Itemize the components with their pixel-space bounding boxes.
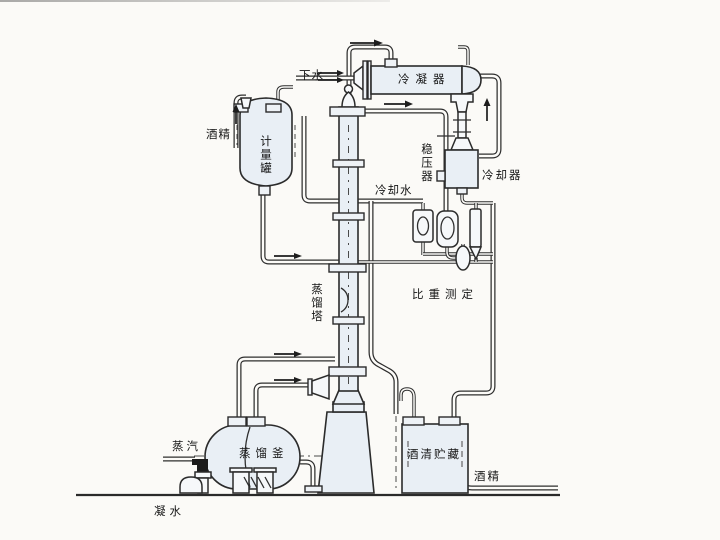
label-cooling-water: 冷却水 bbox=[375, 184, 413, 197]
label-pressure-stabilizer: 稳压器 bbox=[419, 143, 433, 184]
label-gravity-measurement: 比重测定 bbox=[412, 288, 478, 301]
sight-glass bbox=[413, 210, 433, 242]
feed-bell bbox=[241, 98, 251, 108]
label-condenser: 冷凝器 bbox=[398, 73, 451, 86]
flow-arrow-feed-icon bbox=[274, 253, 302, 259]
float-bulb bbox=[456, 246, 470, 270]
condenser-inlet-nozzle bbox=[385, 59, 397, 67]
condenser-left-trumpet bbox=[354, 66, 363, 90]
label-condensate: 凝水 bbox=[154, 505, 185, 518]
condenser-right-dome bbox=[462, 66, 481, 94]
label-metering-tank: 计量罐 bbox=[258, 135, 272, 176]
flow-arrow-coolant-up-icon bbox=[484, 98, 491, 121]
column-inlet-trumpet bbox=[312, 375, 329, 399]
steam-inlet-assembly bbox=[180, 459, 211, 493]
flow-arrow-still-vapor1-icon bbox=[274, 351, 302, 357]
steam-trap-bell bbox=[180, 477, 202, 493]
process-flow-diagram: 下水 冷凝器 酒精 计量罐 稳压器 冷却器 冷却水 比重测定 蒸馏塔 蒸汽 蒸馏… bbox=[0, 0, 720, 540]
label-alcohol-storage: 酒清贮藏 bbox=[407, 448, 461, 461]
label-cooler: 冷却器 bbox=[482, 169, 523, 182]
label-distillation-still: 蒸馏釜 bbox=[239, 447, 289, 460]
label-drain-water: 下水 bbox=[299, 69, 324, 82]
steam-valve-elbow bbox=[192, 459, 208, 472]
flow-stabilizer-device bbox=[437, 211, 458, 247]
flow-arrow-stabilizer-icon bbox=[384, 101, 413, 108]
label-distillation-column: 蒸馏塔 bbox=[309, 283, 323, 324]
label-alcohol-out: 酒精 bbox=[474, 470, 501, 483]
reducer-stack bbox=[451, 94, 473, 150]
column-top-plate bbox=[330, 107, 365, 116]
diagram-drawing bbox=[0, 0, 720, 540]
label-steam: 蒸汽 bbox=[172, 440, 201, 453]
column-onion-dome bbox=[342, 92, 355, 107]
flow-arrow-still-vapor2-icon bbox=[274, 377, 302, 383]
label-alcohol-feed: 酒精 bbox=[206, 128, 231, 141]
hydrometer-cylinder bbox=[470, 209, 481, 259]
column-pedestal bbox=[318, 412, 374, 493]
